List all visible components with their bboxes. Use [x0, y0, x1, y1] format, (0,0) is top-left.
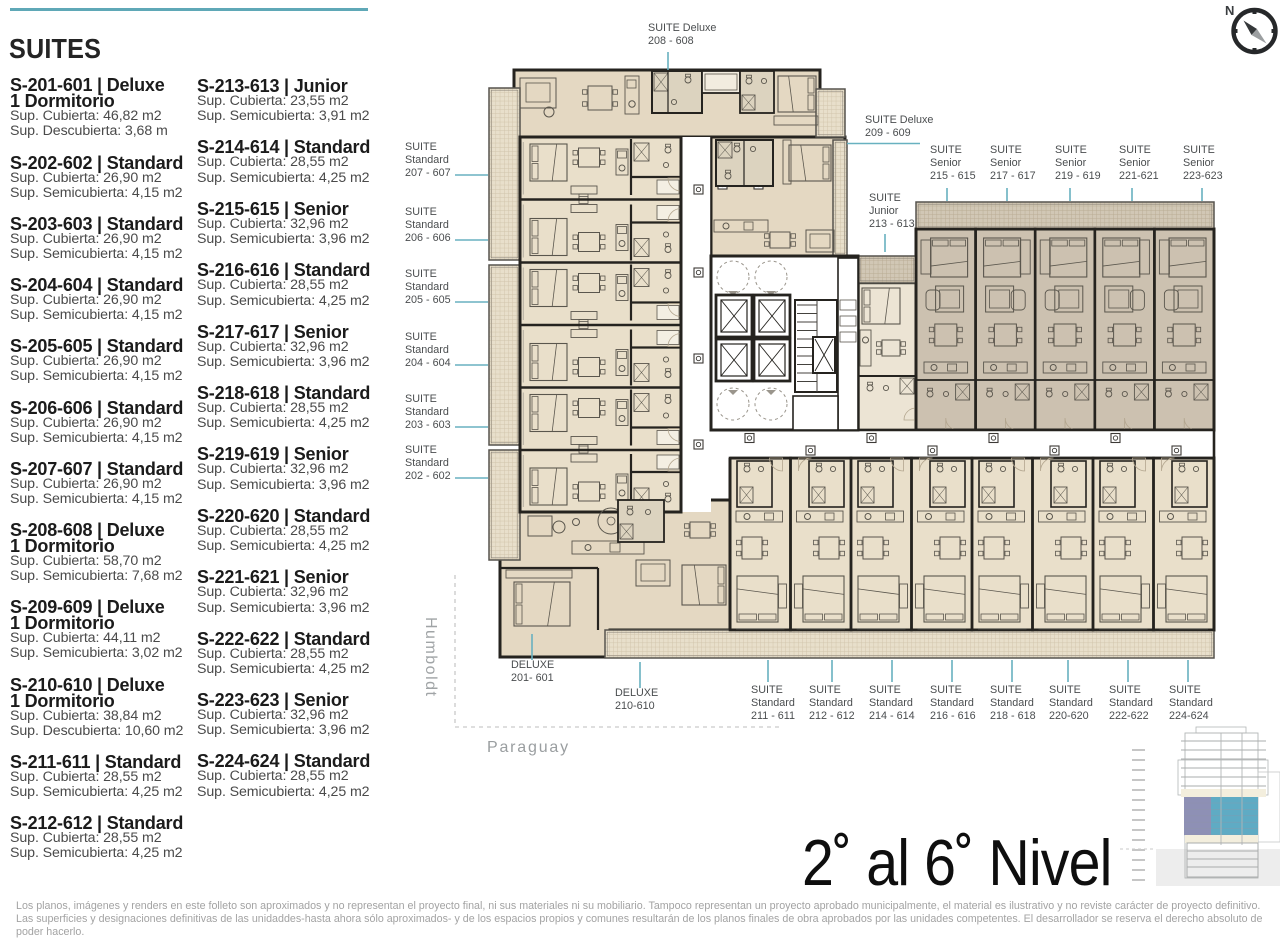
svg-text:N: N: [1225, 3, 1234, 18]
